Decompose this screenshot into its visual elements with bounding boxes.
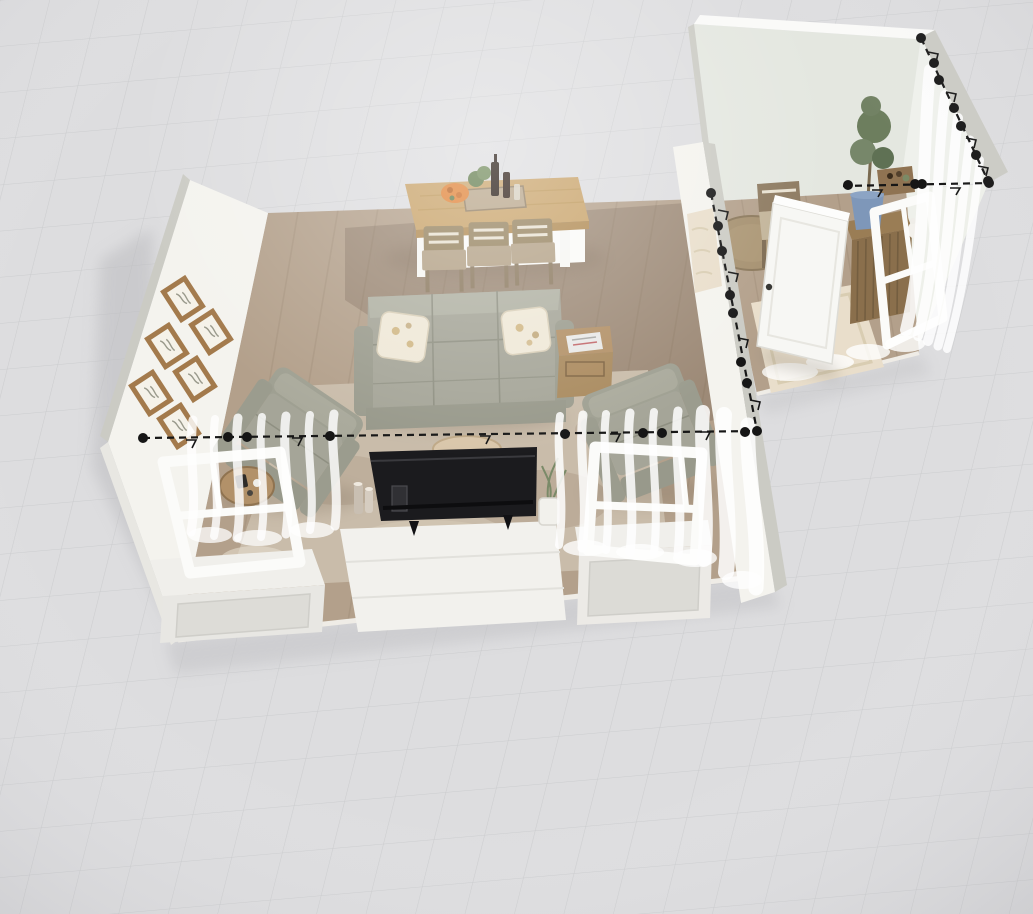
vignette-overlay: [0, 0, 1033, 914]
scene-svg: [0, 0, 1033, 914]
floorplan-3d-view: [0, 0, 1033, 914]
